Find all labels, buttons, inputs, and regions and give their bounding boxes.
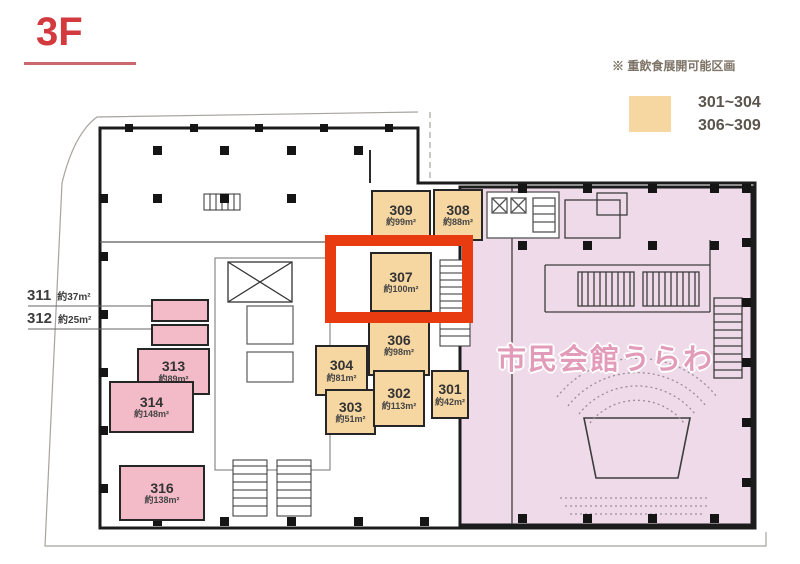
- hall-name: 市民会館うらわ: [497, 336, 714, 378]
- room-311: [151, 299, 209, 322]
- room-303: 303 約51m²: [325, 389, 376, 435]
- room-number: 301: [438, 382, 461, 397]
- room-area: 約113m²: [382, 402, 417, 411]
- elevator-shaft: [228, 262, 292, 302]
- floorplan-page: 3F ※ 重飲食展開可能区画 301~304 306~309 309 約99m²…: [0, 0, 800, 564]
- room-area: 約98m²: [384, 348, 414, 357]
- legend-note: ※ 重飲食展開可能区画: [612, 57, 735, 74]
- room-306: 306 約98m²: [368, 314, 430, 376]
- room-area: 約25m²: [58, 311, 91, 326]
- room-number: 316: [150, 481, 173, 496]
- room-316: 316 約138m²: [119, 465, 205, 521]
- room-area: 約81m²: [326, 374, 356, 383]
- floor-title: 3F: [36, 10, 83, 55]
- room-area: 約88m²: [443, 218, 473, 227]
- room-number: 309: [389, 203, 412, 218]
- room-308: 308 約88m²: [433, 189, 483, 241]
- legend-swatch: [629, 96, 671, 132]
- room-312: [151, 324, 209, 346]
- room-number: 312: [27, 310, 52, 327]
- room-area: 約99m²: [386, 218, 416, 227]
- room-number: 303: [339, 400, 362, 415]
- room-area: 約138m²: [144, 496, 179, 505]
- label-312: 312 約25m²: [27, 310, 91, 327]
- room-number: 302: [387, 386, 410, 401]
- room-area: 約42m²: [435, 398, 465, 407]
- legend-range-1: 301~304: [698, 91, 761, 114]
- room-302: 302 約113m²: [373, 370, 425, 427]
- room-area: 約148m²: [134, 410, 169, 419]
- room-309: 309 約99m²: [371, 190, 431, 240]
- room-area: 約51m²: [335, 415, 365, 424]
- room-number: 313: [162, 359, 185, 374]
- title-underline: [24, 62, 136, 65]
- room-314: 314 約148m²: [109, 381, 194, 433]
- legend-range-2: 306~309: [698, 114, 761, 137]
- label-311: 311 約37m²: [27, 287, 91, 304]
- highlight-box-307: [325, 235, 473, 323]
- legend-ranges: 301~304 306~309: [698, 91, 761, 137]
- room-area: 約37m²: [57, 288, 90, 303]
- room-number: 311: [27, 287, 51, 304]
- room-number: 308: [446, 203, 469, 218]
- room-301: 301 約42m²: [431, 370, 469, 419]
- room-number: 304: [330, 358, 353, 373]
- room-number: 306: [387, 333, 410, 348]
- room-number: 314: [140, 395, 163, 410]
